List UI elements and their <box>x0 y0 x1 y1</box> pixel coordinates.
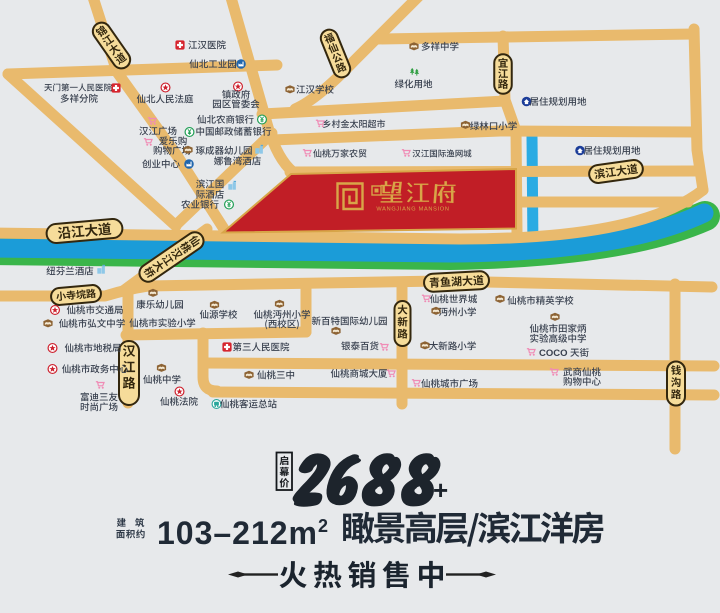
svg-text:2: 2 <box>318 516 328 536</box>
svg-text:COCO: COCO <box>539 348 568 359</box>
svg-text:WANGJIANG MANSION: WANGJIANG MANSION <box>376 207 449 213</box>
svg-text:+: + <box>433 475 448 505</box>
svg-text:103–212m: 103–212m <box>157 515 317 551</box>
